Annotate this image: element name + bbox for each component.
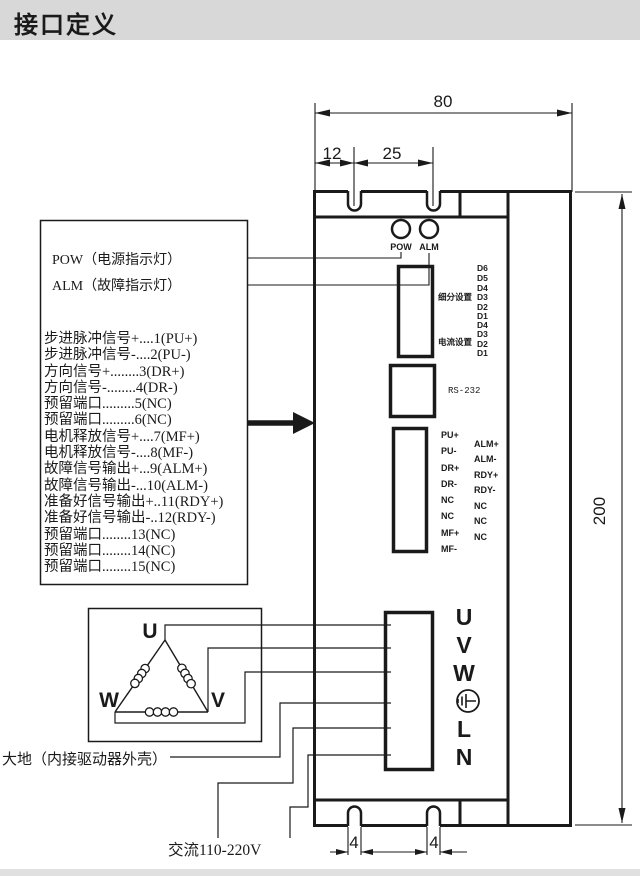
alm-led-icon xyxy=(420,220,438,238)
motor-terminal-w: W xyxy=(94,689,124,713)
dip-bit: D3 xyxy=(477,292,488,302)
callout-arrow xyxy=(248,412,315,434)
dim-height: 200 xyxy=(590,491,610,531)
ac-input-note: 交流110-220V xyxy=(168,838,261,860)
motor-terminal-v: V xyxy=(203,689,233,713)
earth-note: 大地（内接驱动器外壳） xyxy=(2,748,167,769)
power-terminal-l: L xyxy=(446,716,482,743)
pin-label: NC xyxy=(474,500,487,512)
signal-line: 预留端口........15(NC) xyxy=(44,559,246,575)
pow-led-label: POW xyxy=(388,242,414,252)
signal-line: 预留端口........14(NC) xyxy=(44,543,246,559)
signal-line: 电机释放信号+....7(MF+) xyxy=(44,429,246,445)
pin-label: ALM+ xyxy=(474,438,499,450)
dim-slot-b: 4 xyxy=(423,833,445,853)
signal-line: 预留端口.........6(NC) xyxy=(44,412,246,428)
legend-alm-line: ALM（故障指示灯） xyxy=(52,275,181,295)
pin-label: PU- xyxy=(441,445,457,457)
pow-led-icon xyxy=(392,220,410,238)
signal-line: 准备好信号输出-..12(RDY-) xyxy=(44,510,246,526)
motor-terminal-u: U xyxy=(135,620,165,644)
dip-bit: D5 xyxy=(477,273,488,283)
signal-line: 准备好信号输出+..11(RDY+) xyxy=(44,494,246,510)
signal-line: 预留端口.........5(NC) xyxy=(44,396,246,412)
dim-top-width: 80 xyxy=(425,92,461,112)
ground-symbol-icon xyxy=(457,690,479,712)
pin-label: DR- xyxy=(441,478,457,490)
dip-bit: D1 xyxy=(477,348,488,358)
signal-list: 步进脉冲信号+....1(PU+) 步进脉冲信号-....2(PU-) 方向信号… xyxy=(44,331,246,575)
signal-line: 方向信号+........3(DR+) xyxy=(44,364,246,380)
signal-line: 故障信号输出+...9(ALM+) xyxy=(44,461,246,477)
pin-label: NC xyxy=(474,515,487,527)
pin-label: NC xyxy=(441,494,454,506)
signal-line: 故障信号输出-...10(ALM-) xyxy=(44,478,246,494)
winding-coil-icons xyxy=(131,664,196,716)
power-terminal-w: W xyxy=(446,660,482,687)
power-terminal-u: U xyxy=(446,604,482,631)
pin-label: RDY- xyxy=(474,484,496,496)
dip-bit: D3 xyxy=(477,329,488,339)
signal-connector-block xyxy=(394,429,427,552)
pin-label: MF- xyxy=(441,543,457,555)
leader-lines xyxy=(248,252,429,285)
pin-label: PU+ xyxy=(441,429,459,441)
pin-label: RDY+ xyxy=(474,469,498,481)
interface-definition-page: 接口定义 xyxy=(0,0,640,876)
alm-led-label: ALM xyxy=(416,242,442,252)
signal-line: 步进脉冲信号-....2(PU-) xyxy=(44,347,246,363)
power-terminal-v: V xyxy=(446,632,482,659)
pin-label: NC xyxy=(441,510,454,522)
signal-line: 步进脉冲信号+....1(PU+) xyxy=(44,331,246,347)
dim-notch-pitch: 25 xyxy=(379,144,405,164)
dip-bit: D6 xyxy=(477,263,488,273)
bottom-strip xyxy=(0,869,640,876)
signal-line: 方向信号-........4(DR-) xyxy=(44,380,246,396)
pin-label: MF+ xyxy=(441,527,459,539)
legend-pow-line: POW（电源指示灯） xyxy=(52,249,181,269)
power-terminal-block xyxy=(386,613,433,770)
microstep-setting-label: 细分设置 xyxy=(434,292,472,302)
dip-switch-block xyxy=(399,267,433,357)
rs232-port-block xyxy=(391,366,435,417)
dim-slot-a: 4 xyxy=(343,833,365,853)
dim-notch-offset: 12 xyxy=(319,144,345,164)
pin-label: DR+ xyxy=(441,462,459,474)
current-setting-label: 电流设置 xyxy=(434,337,472,347)
signal-line: 电机释放信号-....8(MF-) xyxy=(44,445,246,461)
power-wires xyxy=(115,625,391,838)
power-terminal-n: N xyxy=(446,744,482,771)
pin-label: ALM- xyxy=(474,453,497,465)
pin-label: NC xyxy=(474,531,487,543)
signal-line: 预留端口........13(NC) xyxy=(44,527,246,543)
rs232-label: RS-232 xyxy=(448,386,480,396)
